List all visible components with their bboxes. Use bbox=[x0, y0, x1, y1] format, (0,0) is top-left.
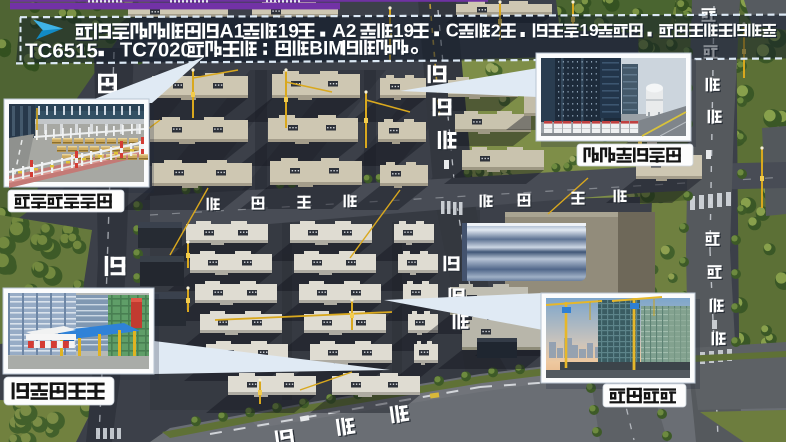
svg-text:TC7020: TC7020 bbox=[120, 40, 192, 62]
svg-text:19: 19 bbox=[579, 20, 598, 40]
svg-text:BIM: BIM bbox=[309, 38, 344, 59]
svg-text:2: 2 bbox=[491, 21, 501, 41]
svg-text:C: C bbox=[446, 21, 459, 41]
svg-text:19: 19 bbox=[278, 21, 299, 42]
svg-text:19: 19 bbox=[393, 20, 414, 41]
svg-text:A1: A1 bbox=[220, 21, 245, 43]
svg-text:TC6515: TC6515 bbox=[25, 39, 98, 62]
